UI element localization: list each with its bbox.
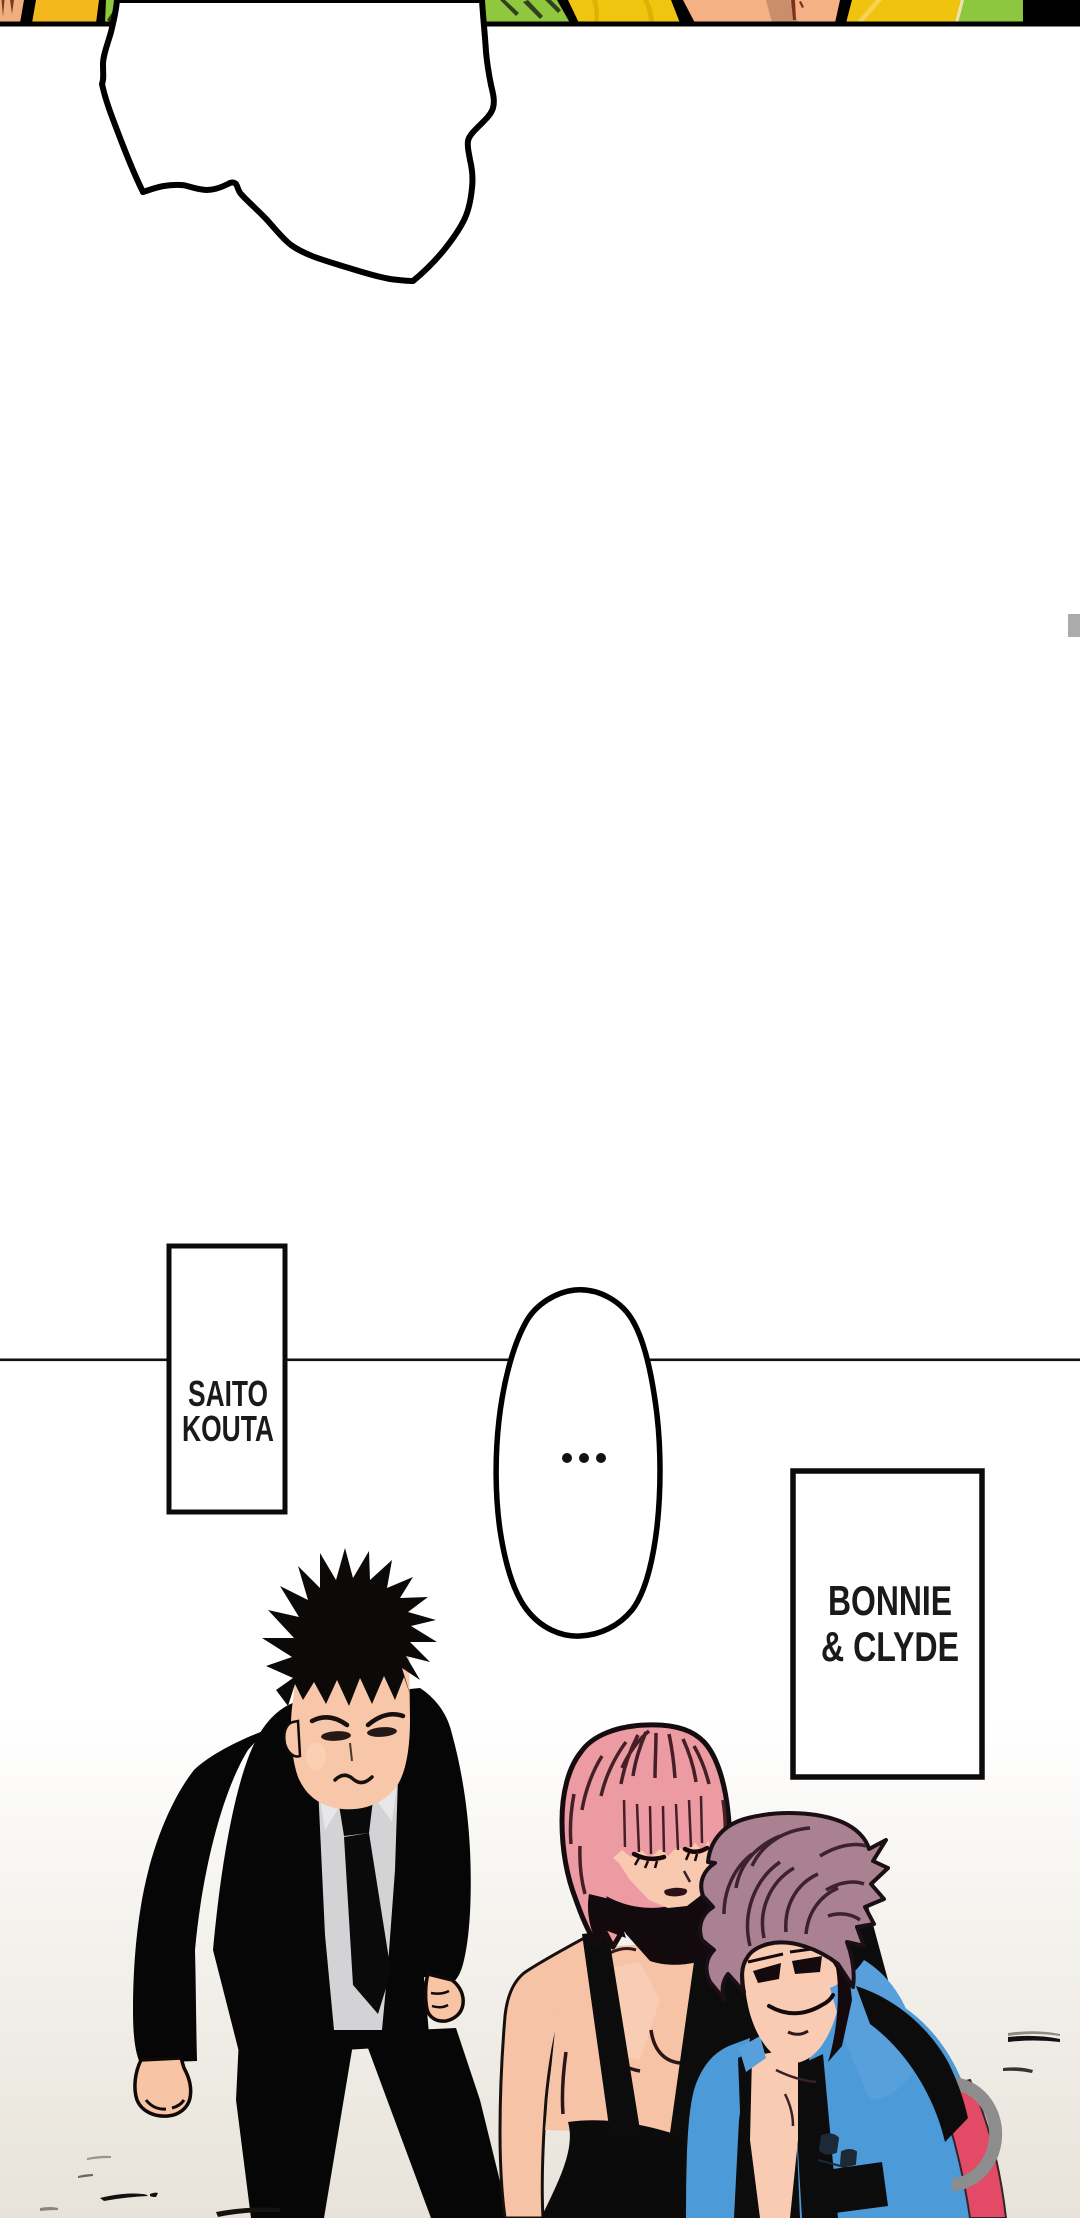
svg-text:KOUTA: KOUTA xyxy=(182,1408,274,1449)
svg-text:BONNIE: BONNIE xyxy=(828,1577,952,1624)
svg-text:& CLYDE: & CLYDE xyxy=(821,1623,959,1670)
